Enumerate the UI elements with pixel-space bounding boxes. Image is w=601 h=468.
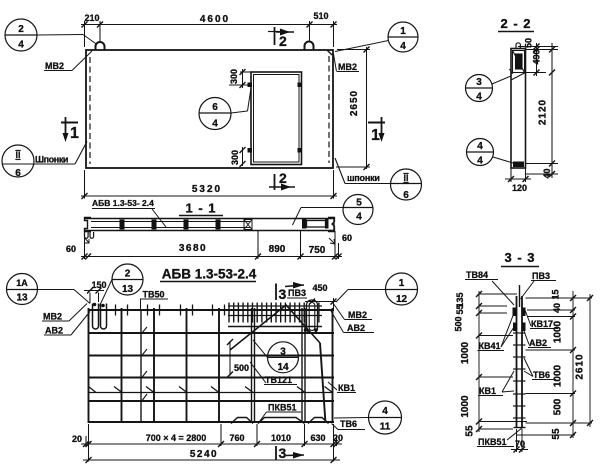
svg-text:12: 12 bbox=[396, 294, 408, 305]
svg-text:II: II bbox=[15, 150, 20, 160]
svg-text:55: 55 bbox=[455, 304, 465, 314]
svg-text:1А: 1А bbox=[16, 278, 28, 288]
svg-text:20: 20 bbox=[72, 434, 82, 444]
svg-text:КВ1: КВ1 bbox=[338, 383, 355, 393]
svg-text:2650: 2650 bbox=[349, 90, 360, 116]
svg-text:2120: 2120 bbox=[538, 99, 549, 125]
svg-text:1: 1 bbox=[399, 278, 405, 289]
svg-text:1010: 1010 bbox=[271, 433, 291, 443]
svg-text:6: 6 bbox=[15, 168, 21, 179]
svg-text:11: 11 bbox=[380, 422, 391, 433]
svg-text:750: 750 bbox=[309, 245, 326, 256]
svg-text:15: 15 bbox=[551, 289, 561, 299]
svg-text:2610: 2610 bbox=[575, 353, 586, 379]
svg-text:3: 3 bbox=[279, 286, 287, 302]
svg-text:МВ2: МВ2 bbox=[43, 312, 62, 322]
svg-text:ПКВ51: ПКВ51 bbox=[268, 403, 296, 413]
svg-text:14: 14 bbox=[277, 362, 289, 373]
svg-text:КВ17: КВ17 bbox=[531, 319, 553, 329]
svg-text:2: 2 bbox=[18, 24, 24, 35]
svg-text:210: 210 bbox=[84, 13, 99, 23]
svg-text:13: 13 bbox=[122, 284, 134, 295]
svg-text:55: 55 bbox=[551, 428, 562, 440]
svg-text:1000: 1000 bbox=[460, 395, 471, 418]
svg-text:4: 4 bbox=[476, 92, 482, 103]
svg-text:4: 4 bbox=[400, 41, 406, 52]
svg-text:АВ2: АВ2 bbox=[45, 326, 63, 336]
svg-text:1000: 1000 bbox=[553, 320, 564, 343]
svg-text:300: 300 bbox=[230, 150, 240, 165]
svg-text:ТВ121: ТВ121 bbox=[265, 375, 292, 385]
svg-text:510: 510 bbox=[313, 11, 328, 21]
svg-text:КВ41: КВ41 bbox=[479, 341, 501, 351]
svg-text:60: 60 bbox=[66, 244, 76, 254]
svg-text:700 × 4 = 2800: 700 × 4 = 2800 bbox=[146, 433, 207, 443]
svg-text:2: 2 bbox=[279, 170, 287, 186]
svg-text:5240: 5240 bbox=[190, 449, 218, 460]
svg-text:6: 6 bbox=[212, 102, 218, 113]
svg-text:2 - 2: 2 - 2 bbox=[500, 16, 531, 31]
svg-text:55: 55 bbox=[465, 425, 476, 437]
svg-text:АВ2: АВ2 bbox=[529, 338, 547, 348]
svg-text:ПВ3: ПВ3 bbox=[532, 271, 550, 281]
svg-text:760: 760 bbox=[229, 433, 244, 443]
svg-text:490: 490 bbox=[532, 49, 542, 64]
svg-text:50: 50 bbox=[524, 38, 534, 48]
svg-text:1: 1 bbox=[400, 26, 406, 37]
svg-text:ТВ84: ТВ84 bbox=[466, 270, 488, 280]
svg-text:120: 120 bbox=[512, 183, 527, 193]
svg-text:13: 13 bbox=[16, 293, 28, 304]
svg-text:шпонки: шпонки bbox=[347, 173, 380, 183]
svg-text:4: 4 bbox=[477, 156, 483, 167]
svg-text:300: 300 bbox=[229, 69, 239, 84]
svg-text:500: 500 bbox=[553, 398, 564, 415]
svg-text:АВ2: АВ2 bbox=[347, 323, 365, 333]
svg-text:II: II bbox=[403, 173, 408, 183]
svg-text:4600: 4600 bbox=[200, 14, 230, 25]
svg-text:КВ1: КВ1 bbox=[479, 386, 496, 396]
svg-text:ТВ6: ТВ6 bbox=[340, 419, 357, 429]
svg-text:40: 40 bbox=[552, 303, 562, 313]
svg-text:1: 1 bbox=[371, 127, 380, 144]
svg-text:5320: 5320 bbox=[192, 184, 222, 195]
svg-text:3: 3 bbox=[280, 347, 286, 358]
svg-text:4: 4 bbox=[212, 119, 218, 130]
svg-text:1000: 1000 bbox=[460, 341, 471, 364]
svg-text:3: 3 bbox=[279, 445, 287, 461]
svg-text:ТВ6: ТВ6 bbox=[533, 370, 550, 380]
svg-text:500: 500 bbox=[454, 316, 464, 331]
svg-text:20: 20 bbox=[333, 433, 343, 443]
svg-text:3 - 3: 3 - 3 bbox=[504, 250, 535, 265]
svg-text:МВ2: МВ2 bbox=[338, 62, 357, 72]
svg-text:4: 4 bbox=[382, 406, 388, 417]
svg-text:ПКВ51: ПКВ51 bbox=[478, 437, 506, 447]
svg-text:450: 450 bbox=[312, 283, 327, 293]
svg-text:500: 500 bbox=[234, 363, 249, 373]
svg-text:2: 2 bbox=[279, 33, 287, 49]
svg-text:ПВ3: ПВ3 bbox=[288, 288, 306, 298]
svg-text:3680: 3680 bbox=[179, 243, 207, 254]
svg-text:6: 6 bbox=[403, 190, 409, 201]
svg-text:150: 150 bbox=[91, 280, 106, 290]
svg-text:МВ2: МВ2 bbox=[348, 310, 367, 320]
svg-text:890: 890 bbox=[269, 244, 286, 255]
svg-text:ТВ50: ТВ50 bbox=[143, 290, 165, 300]
svg-text:70: 70 bbox=[515, 439, 525, 449]
svg-text:2: 2 bbox=[125, 269, 131, 280]
svg-text:5: 5 bbox=[356, 198, 362, 209]
svg-text:60: 60 bbox=[342, 233, 352, 243]
svg-text:630: 630 bbox=[310, 433, 325, 443]
svg-text:АБВ 1.3-53- 2.4: АБВ 1.3-53- 2.4 bbox=[92, 198, 154, 208]
svg-text:МВ2: МВ2 bbox=[45, 61, 64, 71]
svg-text:40: 40 bbox=[542, 168, 552, 178]
svg-text:4: 4 bbox=[477, 141, 483, 152]
svg-text:Шпонки: Шпонки bbox=[35, 155, 68, 165]
svg-text:3: 3 bbox=[476, 77, 482, 88]
svg-text:1: 1 bbox=[70, 125, 79, 142]
svg-text:4: 4 bbox=[356, 212, 362, 223]
svg-text:1000: 1000 bbox=[553, 364, 564, 387]
svg-text:АБВ 1.3-53-2.4: АБВ 1.3-53-2.4 bbox=[162, 267, 257, 282]
svg-text:4: 4 bbox=[18, 40, 24, 51]
svg-text:1 - 1: 1 - 1 bbox=[185, 201, 216, 216]
